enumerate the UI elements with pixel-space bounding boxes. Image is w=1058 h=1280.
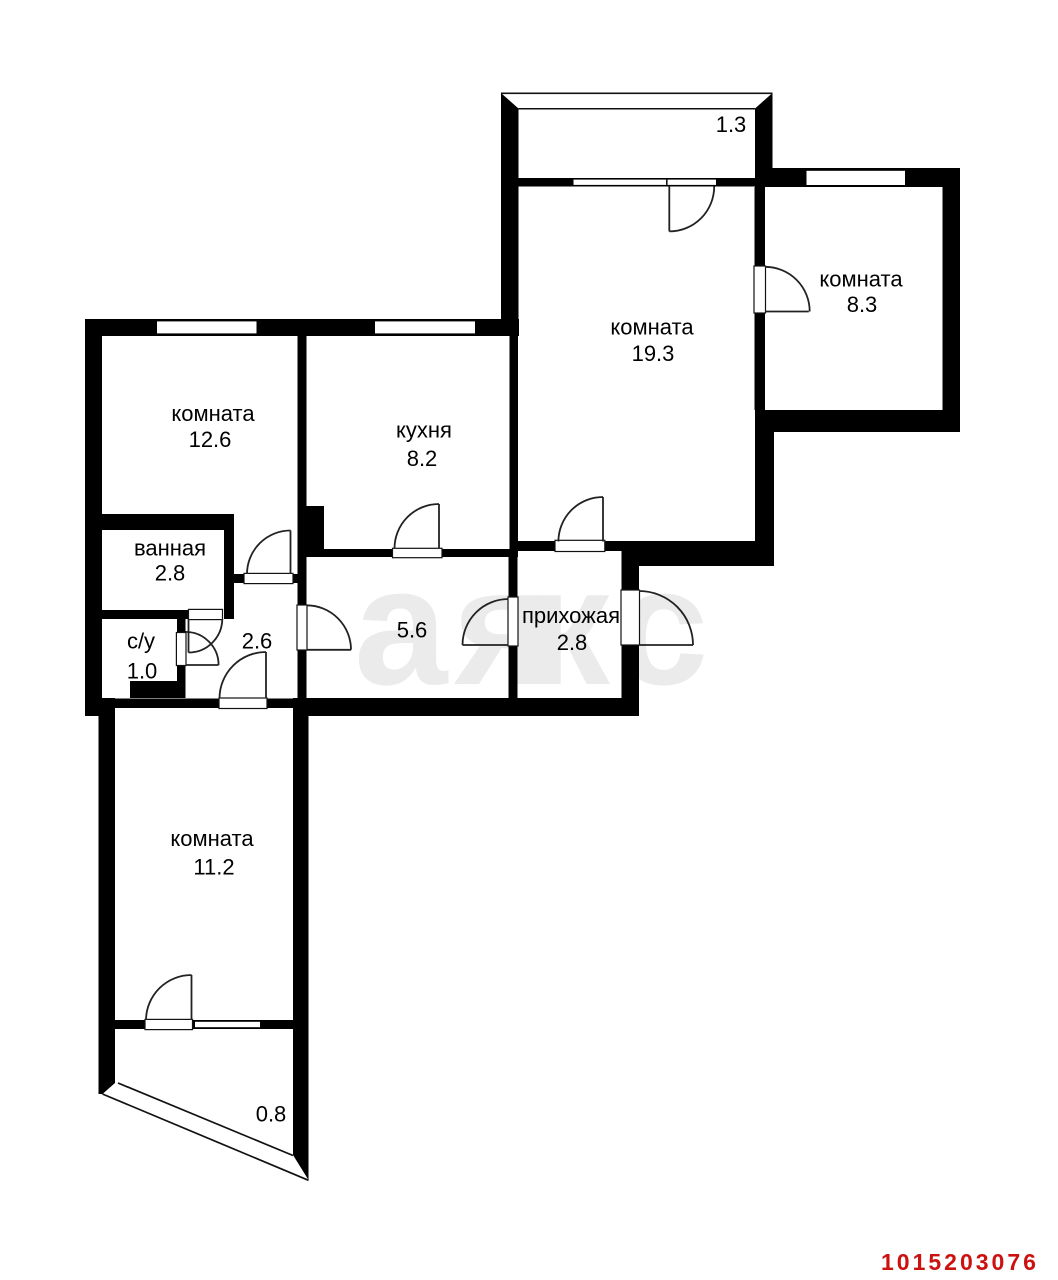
svg-text:1.0: 1.0: [127, 659, 158, 684]
svg-text:8.3: 8.3: [847, 292, 878, 317]
svg-text:8.2: 8.2: [407, 446, 438, 471]
svg-text:1.3: 1.3: [716, 112, 747, 137]
svg-text:с/у: с/у: [127, 629, 155, 654]
svg-text:12.6: 12.6: [189, 427, 232, 452]
svg-text:2.6: 2.6: [242, 629, 273, 654]
svg-text:2.8: 2.8: [155, 561, 186, 586]
svg-text:2.8: 2.8: [557, 630, 588, 655]
svg-text:ванная: ванная: [134, 536, 206, 561]
svg-text:11.2: 11.2: [193, 855, 234, 880]
svg-text:5.6: 5.6: [397, 618, 428, 643]
svg-text:комната: комната: [819, 267, 903, 292]
svg-text:0.8: 0.8: [256, 1102, 287, 1127]
svg-text:комната: комната: [170, 826, 254, 851]
svg-text:комната: комната: [610, 315, 694, 340]
svg-text:19.3: 19.3: [632, 341, 675, 366]
svg-text:1015203076: 1015203076: [881, 1249, 1039, 1275]
svg-text:прихожая: прихожая: [522, 603, 620, 628]
svg-text:комната: комната: [171, 401, 255, 426]
svg-text:кухня: кухня: [396, 418, 452, 443]
